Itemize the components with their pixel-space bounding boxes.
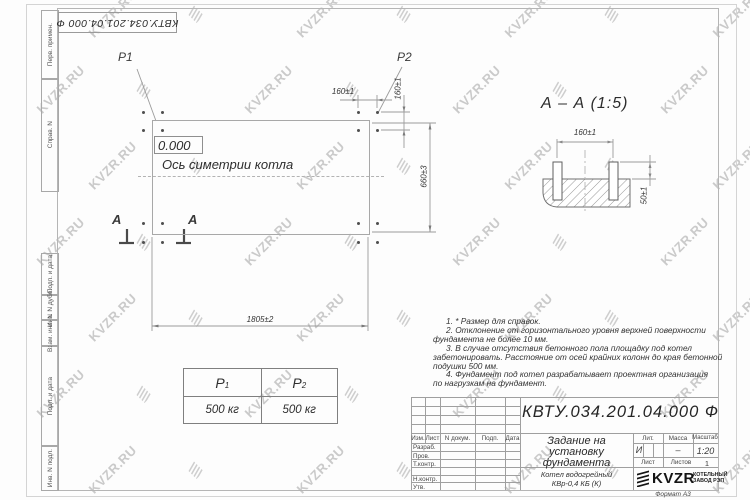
watermark-logo-icon — [0, 2, 1, 29]
col-list: Лист — [425, 435, 440, 442]
p1-subscript: 1 — [225, 381, 229, 390]
anchor-bolt-dot — [161, 129, 164, 132]
section-view-title: А – А (1:5) — [541, 95, 628, 113]
company-name: KVZR — [652, 470, 695, 487]
sheets-label: Листов — [663, 459, 699, 466]
anchor-bolt-dot — [161, 111, 164, 114]
document-title-line: установку — [520, 447, 633, 458]
anchor-bolt-dot — [376, 222, 379, 225]
row-prov: Пров. — [413, 453, 430, 460]
level-mark-box: 0.000 — [154, 136, 203, 154]
sidebar-box-inv-podl: Инв. N подл. — [41, 445, 59, 491]
sidebar-label: Подп. и дата — [47, 377, 54, 415]
mass-value: – — [663, 445, 693, 455]
corner-designation-box: КВТУ.034.201.04.000 Ф — [58, 12, 177, 33]
boiler-symmetry-axis-line — [138, 176, 384, 177]
sheets-value: 1 — [698, 459, 716, 468]
product-name: Котел водогрейный КВр-0,4 КБ (К) — [520, 471, 633, 488]
lit-value: И — [633, 445, 645, 455]
document-title: Задание на установку фундамента — [520, 436, 633, 468]
drawing-sheet: KVZR.RUKVZR.RUKVZR.RUKVZR.RUKVZR.RUKVZR.… — [0, 0, 750, 500]
dim-160-top: 160±1 — [328, 87, 358, 96]
row-nkontr: Н.контр. — [413, 476, 437, 483]
col-podp: Подп. — [475, 435, 505, 442]
anchor-bolt-dot — [357, 129, 360, 132]
sidebar-box-podp-data-2: Подп. и дата — [41, 345, 59, 447]
sidebar-box-vzam-inv: Взам. инв. N — [41, 319, 59, 347]
col-data: Дата — [505, 435, 520, 442]
axis-label: Ось симетрии котла — [162, 157, 293, 172]
watermark-logo-icon — [0, 458, 1, 485]
load-table-value-p1: 500 кг — [184, 396, 261, 423]
title-block-designation: КВТУ.034.201.04.000 Ф — [522, 403, 716, 422]
note-line: по нагрузкам на фундамент. — [433, 379, 733, 388]
sheet-label: Лист — [633, 459, 663, 466]
watermark-logo-icon — [0, 154, 1, 181]
mass-label: Масса — [663, 435, 693, 442]
load-table-header-p1: P 1 — [184, 369, 261, 396]
p2-value: 500 кг — [283, 404, 316, 416]
col-dokum: N докум. — [440, 435, 475, 442]
section-dim-160: 160±1 — [570, 128, 600, 137]
section-letter-a-right: А — [188, 212, 197, 227]
col-izm: Изм. — [411, 435, 425, 442]
anchor-bolt-dot — [357, 222, 360, 225]
watermark-logo-icon — [0, 306, 1, 333]
lit-label: Лит. — [633, 435, 663, 442]
section-letter-a-left: А — [112, 212, 121, 227]
p2-subscript: 2 — [302, 381, 306, 390]
anchor-bolt-dot — [142, 222, 145, 225]
level-mark: 0.000 — [158, 138, 191, 153]
anchor-bolt-dot — [357, 111, 360, 114]
scale-value: 1:20 — [693, 446, 718, 456]
company-subtitle: КОТЕЛЬНЫЙ ЗАВОД РЭП — [693, 472, 727, 484]
anchor-bolt-dot — [376, 129, 379, 132]
sidebar-label: Инв. N подл. — [47, 449, 54, 487]
row-utv: Утв. — [413, 484, 425, 491]
anchor-bolt-dot — [376, 241, 379, 244]
product-name-line: КВр-0,4 КБ (К) — [520, 480, 633, 489]
sidebar-box-sprav-n: Справ. N — [41, 78, 59, 192]
corner-designation-text: КВТУ.034.201.04.000 Ф — [56, 17, 178, 29]
p2-symbol: P — [292, 375, 301, 391]
anchor-bolt-dot — [161, 241, 164, 244]
anchor-bolt-dot — [357, 241, 360, 244]
company-logo-icon — [637, 469, 649, 492]
load-table-value-p2: 500 кг — [261, 396, 338, 423]
p1-symbol: P — [215, 375, 224, 391]
p1-value: 500 кг — [206, 404, 239, 416]
anchor-bolt-dot — [142, 129, 145, 132]
dim-1805: 1805±2 — [230, 315, 290, 324]
dim-660: 660±3 — [420, 157, 429, 197]
company-subtitle-line: ЗАВОД РЭП — [693, 478, 727, 484]
anchor-bolt-dot — [376, 111, 379, 114]
anchor-bolt-dot — [142, 111, 145, 114]
load-table: P 1 P 2 500 кг 500 кг — [183, 368, 338, 424]
sidebar-label: Подп. и дата — [47, 255, 54, 293]
p2-label: P2 — [397, 50, 412, 64]
document-title-line: фундамента — [520, 458, 633, 469]
anchor-bolt-dot — [142, 241, 145, 244]
section-dim-50: 50±1 — [640, 178, 649, 214]
row-razrab: Разраб. — [413, 444, 436, 451]
technical-notes: 1. * Размер для справок. 2. Отклонение о… — [433, 317, 733, 388]
sidebar-label: Справ. N — [47, 121, 54, 148]
load-table-header-p2: P 2 — [261, 369, 338, 396]
dim-160-right: 160±1 — [394, 69, 403, 109]
scale-label: Масштаб — [692, 435, 718, 441]
anchor-bolt-dot — [161, 222, 164, 225]
sidebar-label: Перв. примен. — [47, 23, 54, 66]
row-tkontr: Т.контр. — [413, 461, 436, 468]
p1-label: P1 — [118, 50, 133, 64]
format-label: Формат А3 — [628, 491, 718, 498]
